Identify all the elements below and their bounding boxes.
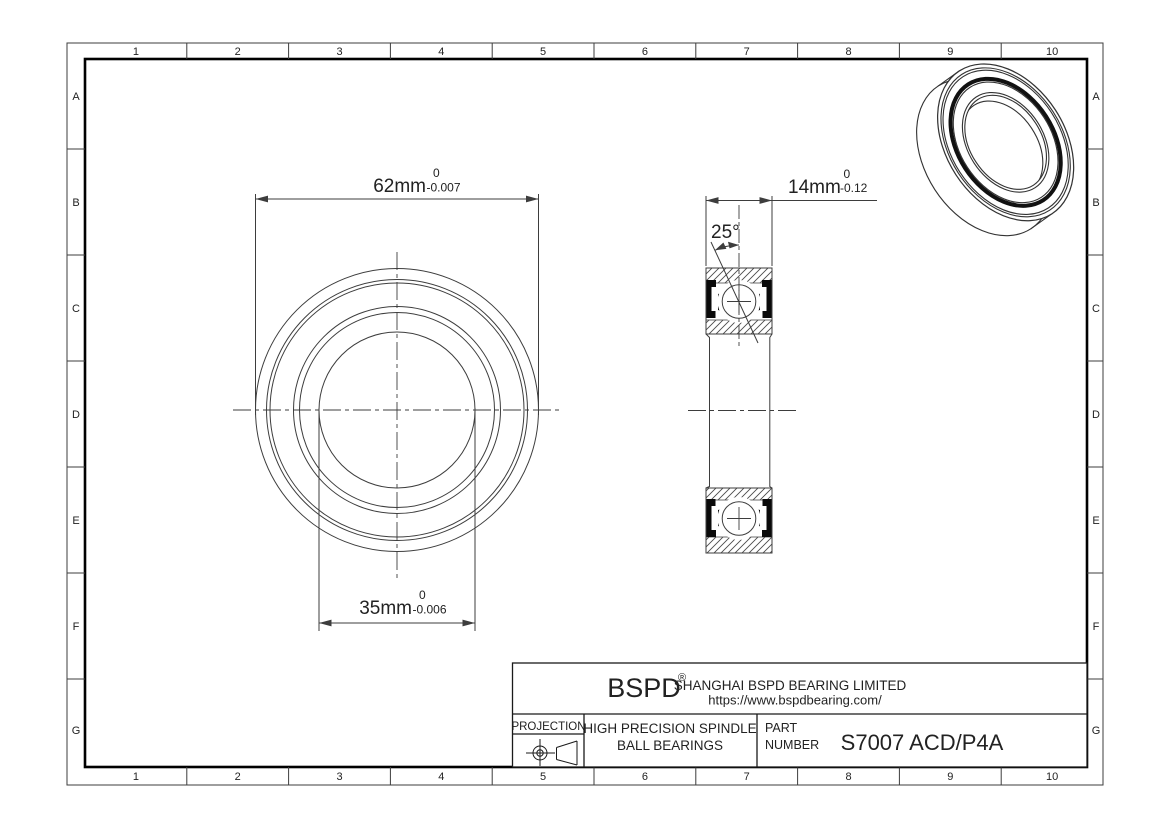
- dimension-value: 14mm: [788, 177, 841, 198]
- company-website: https://www.bspdbearing.com/: [708, 693, 882, 708]
- contact-angle-value: 25°: [711, 222, 740, 243]
- zone-label: 6: [642, 771, 648, 783]
- zone-label: A: [1092, 91, 1100, 103]
- zone-label: A: [72, 91, 80, 103]
- tolerance-upper: 0: [419, 588, 426, 602]
- tolerance-lower: -0.006: [413, 603, 447, 617]
- zone-label: G: [1092, 725, 1101, 737]
- arrowhead: [256, 196, 269, 203]
- zone-label: E: [72, 515, 79, 527]
- drawing-canvas: 1 2 3 4 5 6 7 8 9 10 1 2 3 4 5 6 7 8 9 1…: [0, 0, 1170, 827]
- zone-label: G: [72, 725, 81, 737]
- arrowhead: [760, 197, 773, 204]
- arrowhead: [319, 620, 332, 627]
- bearing-3d-pictorial: [888, 39, 1103, 261]
- zone-label: E: [1092, 515, 1099, 527]
- bore-walls: [706, 334, 772, 488]
- part-label-line2: NUMBER: [765, 738, 819, 752]
- front-view: 62mm 0 -0.007 35mm 0 -0.006: [233, 166, 561, 631]
- engineering-drawing-sheet: 1 2 3 4 5 6 7 8 9 10 1 2 3 4 5 6 7 8 9 1…: [0, 0, 1170, 827]
- tolerance-upper: 0: [433, 166, 440, 180]
- zone-label: 9: [947, 46, 953, 58]
- section-view: 25° 14mm 0 -0.12: [688, 167, 877, 553]
- zone-label: 1: [133, 771, 139, 783]
- zone-label: 7: [744, 46, 750, 58]
- zone-label: 9: [947, 771, 953, 783]
- zone-label: F: [73, 621, 80, 633]
- part-label-line1: PART: [765, 721, 798, 735]
- arrowhead: [526, 196, 539, 203]
- product-name-line2: BALL BEARINGS: [617, 738, 723, 753]
- tolerance-lower: -0.007: [427, 181, 461, 195]
- zone-label: 6: [642, 46, 648, 58]
- company-logo: BSPD: [607, 673, 681, 703]
- zone-label: B: [72, 197, 79, 209]
- frame-rows-left: A B C D E F G: [72, 91, 81, 737]
- tolerance-upper: 0: [844, 167, 851, 181]
- zone-label: 4: [438, 771, 444, 783]
- company-name: SHANGHAI BSPD BEARING LIMITED: [674, 678, 907, 693]
- zone-label: 7: [744, 771, 750, 783]
- arrowhead: [715, 243, 727, 251]
- zone-label: 4: [438, 46, 444, 58]
- zone-label: C: [1092, 303, 1100, 315]
- zone-label: 10: [1046, 771, 1058, 783]
- product-name-line1: HIGH PRECISION SPINDLE: [583, 721, 756, 736]
- zone-label: 3: [336, 46, 342, 58]
- dimension-value: 62mm: [373, 176, 426, 197]
- title-block: BSPD ® SHANGHAI BSPD BEARING LIMITED htt…: [511, 663, 1087, 767]
- zone-label: 2: [235, 46, 241, 58]
- frame-rows-right: A B C D E F G: [1092, 91, 1101, 737]
- zone-label: 1: [133, 46, 139, 58]
- arrowhead: [463, 620, 476, 627]
- zone-label: 5: [540, 771, 546, 783]
- width-dimension: 14mm 0 -0.12: [706, 167, 877, 266]
- zone-label: 8: [845, 46, 851, 58]
- frame-columns-top: 1 2 3 4 5 6 7 8 9 10: [133, 46, 1058, 58]
- dimension-value: 35mm: [359, 598, 412, 619]
- tolerance-lower: -0.12: [840, 181, 868, 195]
- part-number-value: S7007 ACD/P4A: [841, 730, 1004, 755]
- zone-label: 5: [540, 46, 546, 58]
- zone-label: B: [1092, 197, 1099, 209]
- frame-columns-bottom: 1 2 3 4 5 6 7 8 9 10: [133, 771, 1058, 783]
- zone-label: 10: [1046, 46, 1058, 58]
- zone-label: D: [72, 409, 80, 421]
- zone-label: C: [72, 303, 80, 315]
- zone-label: F: [1093, 621, 1100, 633]
- arrowhead: [706, 197, 719, 204]
- zone-label: 2: [235, 771, 241, 783]
- zone-label: 8: [845, 771, 851, 783]
- zone-label: 3: [336, 771, 342, 783]
- projection-label: PROJECTION: [511, 721, 585, 733]
- zone-label: D: [1092, 409, 1100, 421]
